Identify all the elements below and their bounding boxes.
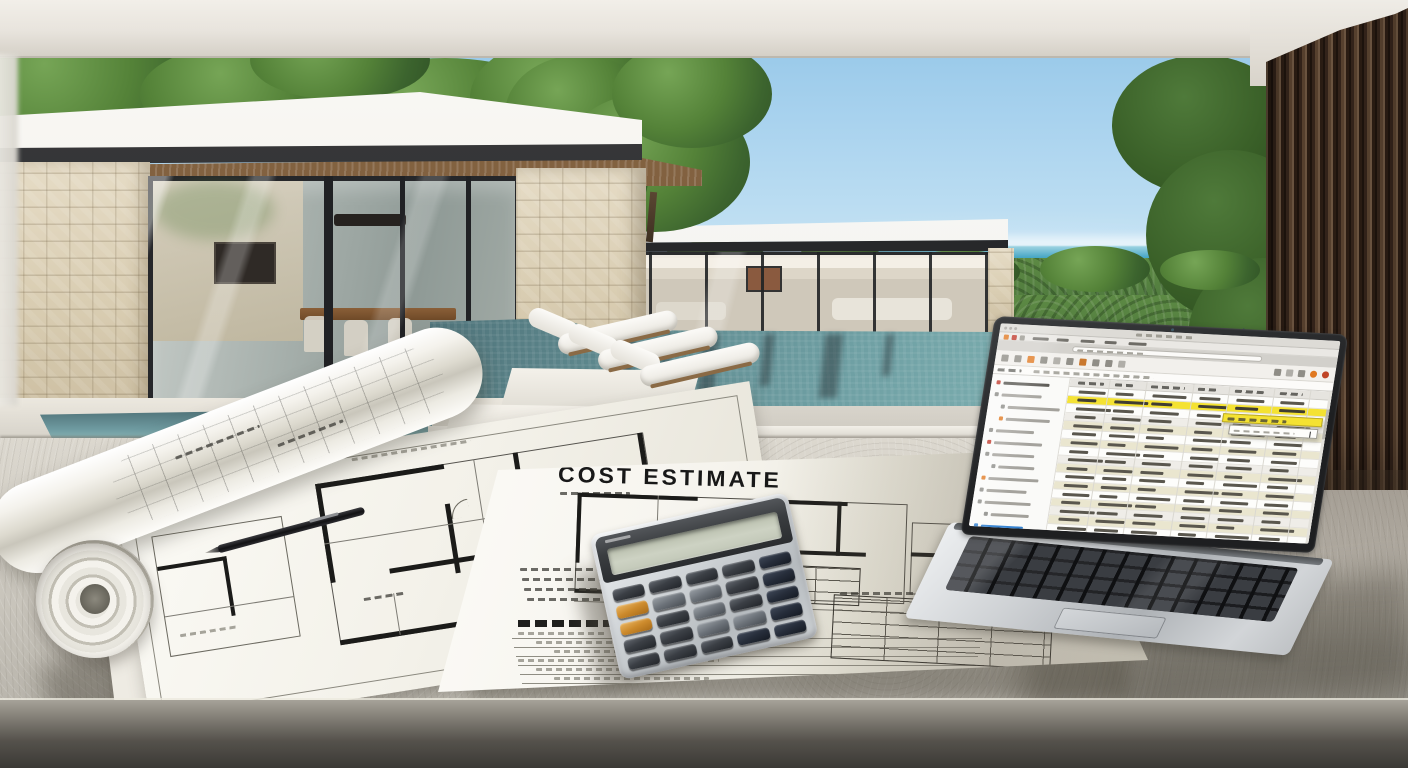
laptop-screen	[960, 316, 1348, 553]
cell-text	[1101, 486, 1128, 490]
grid-rows	[1047, 387, 1331, 544]
cell-text	[1132, 522, 1156, 526]
cell-text	[1064, 484, 1088, 488]
cell-text	[1106, 452, 1140, 457]
calculator-key	[721, 559, 755, 578]
cell-text	[1105, 460, 1126, 464]
calculator-key	[612, 583, 646, 602]
cell-text	[1270, 469, 1289, 473]
toolbar-icon	[1027, 356, 1035, 363]
sidebar-item-icon	[974, 523, 979, 527]
cell-text	[1266, 494, 1295, 498]
column-header-text	[1279, 392, 1303, 396]
cell-text	[1272, 452, 1296, 456]
cell-text	[1075, 416, 1096, 420]
calculator-key	[765, 585, 799, 604]
cell-text	[1151, 402, 1172, 406]
cell-text	[1061, 501, 1080, 505]
toolbar-icon	[1066, 358, 1074, 365]
window-minimize-icon	[1009, 327, 1012, 330]
screen-content	[969, 323, 1341, 543]
cell-text	[1259, 537, 1280, 541]
sidebar-item-icon	[994, 392, 999, 396]
cell-text	[1079, 390, 1106, 394]
sidebar-item-icon	[984, 512, 989, 516]
cell-text	[1103, 469, 1132, 473]
sidebar-item-label	[992, 453, 1034, 458]
calculator-key	[659, 626, 693, 645]
cell-text	[1059, 518, 1080, 522]
toolbar-icon	[1274, 369, 1282, 376]
cell-text	[1236, 398, 1265, 402]
cell-text	[1194, 430, 1213, 434]
cell-text	[1152, 394, 1186, 399]
cell-text	[1260, 529, 1294, 534]
calculator-key	[762, 568, 796, 587]
toolbar-icon	[1092, 359, 1100, 366]
sidebar-item-icon	[1001, 404, 1006, 408]
sidebar-item-label	[1008, 405, 1060, 411]
cell-text	[1225, 467, 1252, 471]
calculator-key	[696, 618, 730, 637]
cell-text	[1109, 435, 1136, 439]
sidebar-item-icon	[977, 499, 982, 503]
calculator-key	[619, 617, 653, 636]
cell-text	[1147, 428, 1174, 432]
laptop-trackpad	[1053, 607, 1167, 638]
app-body	[969, 374, 1333, 544]
column-header-text	[1198, 388, 1219, 392]
cell-text	[1217, 518, 1244, 522]
calculator-key	[648, 575, 682, 594]
cell-text	[1149, 411, 1178, 415]
cell-text	[1114, 400, 1148, 405]
cell-reference	[997, 368, 1021, 372]
calculator-key	[733, 610, 767, 629]
sidebar-item-icon	[989, 428, 994, 432]
calculator-key	[685, 567, 719, 586]
cell-text	[1139, 479, 1166, 483]
sidebar-item-label	[988, 476, 1038, 482]
calculator-key	[627, 651, 661, 670]
cell-text	[1057, 527, 1086, 531]
menu-item	[1057, 338, 1069, 341]
blueprint-roll-end	[36, 540, 154, 658]
cell-text	[1095, 520, 1124, 524]
calculator-brand	[605, 535, 631, 544]
cell-text	[1226, 458, 1250, 462]
app-icon	[1003, 335, 1009, 340]
cell-text	[1143, 454, 1164, 458]
calculator-key	[652, 592, 686, 611]
menu-item	[1104, 341, 1116, 344]
cell-text	[1133, 513, 1162, 517]
sidebar-item-label	[981, 524, 1023, 529]
sidebar-item-icon	[996, 380, 1001, 384]
toolbar-icon	[1014, 355, 1022, 362]
cell-text	[1184, 490, 1218, 495]
calculator-key	[729, 593, 763, 612]
cell-text	[1136, 496, 1170, 501]
sidebar-item-icon	[999, 416, 1004, 420]
cell-text	[1060, 510, 1094, 515]
calculator-key	[663, 643, 697, 662]
cell-text	[1274, 443, 1303, 447]
calculator-key	[688, 584, 722, 603]
cell-text	[1076, 407, 1110, 412]
cell-text	[1228, 449, 1257, 453]
cell-text	[1264, 503, 1288, 507]
column-header-text	[1235, 390, 1264, 394]
sidebar-item-icon	[985, 452, 990, 456]
cell-text	[1107, 443, 1126, 447]
menu-item	[1128, 342, 1146, 345]
cell-text	[1145, 437, 1164, 441]
column-header-text	[1114, 383, 1133, 386]
sidebar-item-label	[996, 429, 1034, 434]
cell-text	[1116, 392, 1135, 396]
calculator-key	[623, 634, 657, 653]
app-icon	[1011, 335, 1017, 340]
cell-text	[1135, 505, 1156, 509]
column-header-text	[1078, 381, 1105, 385]
cell-text	[1144, 445, 1178, 450]
cell-text	[1280, 401, 1304, 405]
cell-text	[1178, 533, 1197, 537]
calculator-key	[700, 635, 734, 654]
cell-text	[1279, 409, 1306, 413]
table-front-edge	[0, 700, 1408, 768]
cell-text	[1187, 473, 1214, 477]
cell-text	[1198, 405, 1227, 409]
cell-text	[1193, 439, 1227, 444]
foreground-pillar	[0, 54, 18, 406]
text-cursor	[1309, 432, 1311, 438]
cell-text	[1235, 407, 1259, 411]
cell-text	[1261, 520, 1280, 524]
cell-text	[1071, 441, 1098, 445]
sidebar-item-icon	[987, 440, 992, 444]
cell-text	[1072, 433, 1096, 437]
cell-text	[1216, 526, 1235, 530]
sidebar-item-label	[1001, 393, 1041, 398]
sidebar-item-label	[1003, 381, 1049, 386]
cell-text	[1188, 465, 1212, 469]
sidebar-item-label	[1006, 417, 1050, 422]
calculator-key	[736, 627, 770, 646]
cell-text	[1218, 509, 1242, 513]
cell-text	[1065, 475, 1094, 479]
toolbar-icon	[1309, 371, 1317, 378]
cell-text	[1113, 409, 1134, 413]
cell-text	[1102, 477, 1126, 481]
cell-text	[1267, 486, 1288, 490]
calculator-key	[615, 600, 649, 619]
sidebar-item-label	[986, 488, 1026, 493]
cell-text	[1140, 471, 1164, 475]
cell-text	[1078, 399, 1097, 403]
column-header-text	[1151, 385, 1185, 389]
menu-item	[1033, 337, 1049, 340]
sidebar-item-label	[994, 441, 1042, 446]
calculator-key	[656, 609, 690, 628]
toolbar-icon	[1297, 370, 1305, 377]
cell-text	[1069, 450, 1088, 454]
toolbar-icon	[1105, 360, 1113, 367]
cell-text	[1180, 516, 1204, 520]
cell-text	[1220, 501, 1249, 505]
window-close-icon	[1004, 327, 1007, 330]
cell-text	[1199, 396, 1220, 400]
cell-text	[1197, 413, 1221, 417]
cell-text	[1182, 507, 1211, 511]
sidebar-item-label	[984, 500, 1030, 505]
calculator-key	[758, 551, 792, 570]
cell-text	[1110, 426, 1134, 430]
cell-text	[1222, 484, 1256, 489]
cell-text	[1063, 492, 1090, 496]
cell-text	[1131, 530, 1158, 534]
cell-text	[1141, 462, 1170, 466]
cell-text	[1067, 467, 1088, 471]
cell-text	[1179, 524, 1206, 528]
spreadsheet-grid	[1047, 378, 1333, 544]
cell-text	[1068, 458, 1102, 463]
toolbar-icon	[1321, 371, 1329, 378]
menu-item	[1080, 340, 1094, 343]
cell-text	[1098, 503, 1132, 508]
cell-text	[1099, 494, 1118, 498]
toolbar-icon	[1053, 357, 1061, 364]
calculator-key	[692, 601, 726, 620]
architect-desk-villa-scene: COST ESTIMATE	[0, 0, 1408, 768]
cell-text	[1221, 492, 1242, 496]
cell-text	[1214, 535, 1248, 540]
sidebar-item-label	[991, 513, 1029, 518]
overhead-ceiling	[0, 0, 1408, 58]
cell-text	[1268, 477, 1302, 482]
cell-text	[1186, 482, 1205, 486]
cell-text	[1112, 418, 1141, 422]
cell-text	[1137, 488, 1156, 492]
toolbar-icon	[1040, 356, 1048, 363]
toolbar-icon	[1118, 361, 1126, 368]
window-title-text	[1136, 333, 1196, 339]
cell-text	[1224, 475, 1243, 479]
cell-text	[1229, 441, 1250, 445]
calculator-key	[773, 619, 807, 638]
cell-text	[1183, 499, 1204, 503]
ruled-line	[518, 665, 976, 666]
address-text	[1077, 349, 1147, 355]
cell-text	[1097, 511, 1118, 515]
sidebar-item-icon	[981, 476, 986, 480]
calculator-key	[769, 602, 803, 621]
cell-text	[1148, 419, 1172, 423]
cell-text	[1190, 456, 1219, 460]
webcam-icon	[1171, 328, 1174, 331]
cell-text	[1074, 424, 1103, 428]
toolbar-icon	[1001, 354, 1009, 361]
window-zoom-icon	[1014, 327, 1017, 330]
app-icon	[1019, 335, 1025, 340]
forest-crown	[1160, 250, 1260, 290]
cell-text	[1094, 528, 1118, 532]
sidebar-item-label	[998, 465, 1034, 470]
cell-text	[1191, 448, 1212, 452]
cell-text	[1263, 512, 1290, 516]
sidebar-item-icon	[991, 464, 996, 468]
toolbar-icon	[1286, 369, 1294, 376]
calculator-key	[725, 576, 759, 595]
cell-text	[1271, 460, 1298, 464]
sidebar-item-icon	[979, 487, 984, 491]
forest-crown	[1040, 246, 1150, 292]
cell-text	[1195, 422, 1222, 426]
toolbar-icon	[1079, 359, 1087, 366]
